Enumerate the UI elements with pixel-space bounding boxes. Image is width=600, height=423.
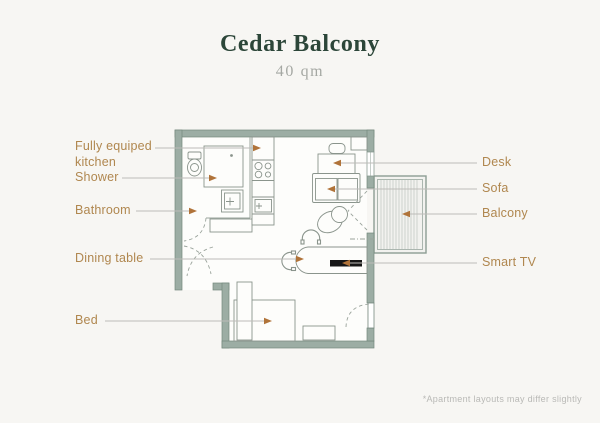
- desk-chair-icon: [329, 144, 345, 154]
- bathroom-sink-icon: [222, 190, 244, 212]
- wall-notch-vertical: [222, 283, 229, 348]
- wall-right-1: [367, 130, 374, 152]
- hallway-sideboard: [210, 219, 252, 232]
- label-balcony: Balcony: [482, 206, 528, 222]
- wall-top: [175, 130, 374, 137]
- label-bathroom: Bathroom: [75, 203, 131, 219]
- wall-right-2: [367, 176, 374, 188]
- label-fully-equiped-kitchen: Fully equiped kitchen: [75, 139, 167, 170]
- label-bed: Bed: [75, 313, 98, 329]
- label-desk: Desk: [482, 155, 511, 171]
- wall-right-3: [367, 233, 374, 303]
- entry-console-icon: [303, 326, 335, 340]
- wall-left: [175, 130, 182, 290]
- kitchen-sink-icon: [255, 200, 272, 213]
- sofa-icon: [313, 174, 361, 203]
- wall-bottom: [222, 341, 374, 348]
- toilet-icon: [188, 152, 202, 176]
- footnote: *Apartment layouts may differ slightly: [423, 394, 582, 404]
- duct-shaft: [351, 137, 367, 150]
- label-dining-table: Dining table: [75, 251, 143, 267]
- label-smart-tv: Smart TV: [482, 255, 536, 271]
- label-sofa: Sofa: [482, 181, 509, 197]
- label-shower: Shower: [75, 170, 119, 186]
- entrance-door-leaf: [368, 303, 374, 328]
- wardrobe-icon: [237, 282, 252, 340]
- balcony-deck: [374, 176, 426, 253]
- floor-plan-page: Cedar Balcony 40 qm: [0, 0, 600, 423]
- wall-right-4: [367, 328, 374, 341]
